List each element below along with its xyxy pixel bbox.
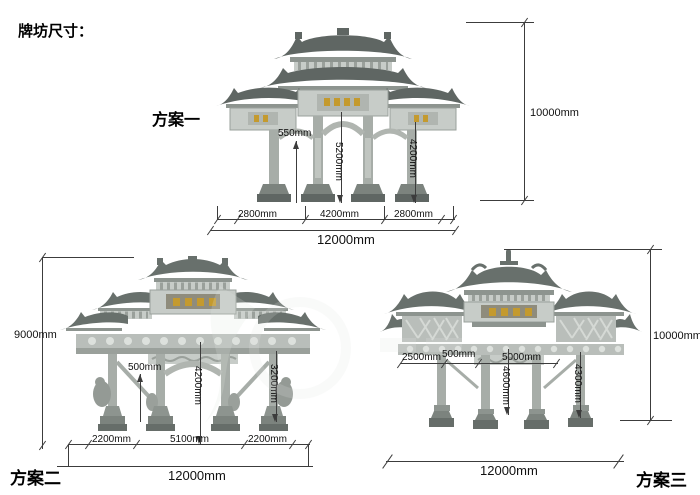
plan1-label: 方案一: [152, 106, 200, 130]
dim-extension-line: [308, 444, 309, 466]
dim-label-plan2-bay-center: 5100mm: [170, 434, 209, 445]
dim-extension-line: [620, 420, 672, 421]
dim-line: [524, 22, 525, 200]
dim-label-plan1-bay-right: 2800mm: [394, 209, 433, 220]
plan2-archway-illustration: [52, 256, 334, 440]
page-title: 牌坊尺寸：: [18, 20, 93, 41]
dim-line: [650, 249, 651, 420]
dim-label-plan1-total-width: 12000mm: [317, 233, 375, 247]
dim-label-plan1-bay-center: 4200mm: [320, 209, 359, 220]
dim-label-plan2-9000: 9000mm: [14, 329, 57, 341]
dim-line: [42, 257, 43, 449]
paifang-dimension-drawing: 牌坊尺寸： 方案一: [0, 0, 700, 495]
plan1-archway-illustration: [216, 26, 470, 212]
dim-arrow: [504, 407, 510, 415]
dim-label-plan1-5200: 5200mm: [333, 142, 343, 181]
dim-total-line: [386, 461, 624, 462]
dim-label-plan2-3200: 3200mm: [268, 364, 278, 403]
plan3-bases: [429, 405, 593, 429]
dim-extension-line: [68, 444, 69, 466]
dim-arrow: [337, 195, 343, 203]
dim-label-plan3-4600: 4600mm: [500, 366, 510, 405]
dim-label-plan3-500: 500mm: [442, 349, 475, 360]
dim-label-plan1-4200v: 4200mm: [407, 139, 417, 178]
dim-label-plan2-bay-left: 2200mm: [92, 434, 131, 445]
plan3-label: 方案三: [636, 466, 687, 491]
dim-line: [296, 141, 297, 203]
plan2-plaque: [150, 290, 236, 314]
dim-label-plan2-4200: 4200mm: [192, 366, 202, 405]
dim-label-plan2-500: 500mm: [128, 362, 161, 373]
dim-extension-line: [504, 249, 662, 250]
plan2-label: 方案二: [10, 464, 61, 489]
dim-arrow: [272, 414, 278, 422]
dim-label-plan3-total-width: 12000mm: [480, 464, 538, 478]
dim-extension-line: [42, 257, 134, 258]
dim-label-plan2-bay-right: 2200mm: [248, 434, 287, 445]
dim-arrow: [411, 195, 417, 203]
dim-total-line: [57, 466, 313, 467]
plan1-bases: [257, 184, 429, 202]
dim-label-plan2-total-width: 12000mm: [168, 469, 226, 483]
plan2-bases: [98, 406, 288, 431]
dim-label-plan3-4300: 4300mm: [572, 364, 582, 403]
dim-line: [140, 374, 141, 422]
dim-label-plan1-10000: 10000mm: [530, 107, 579, 119]
plan3-archway-illustration: [380, 248, 642, 440]
dim-label-plan1-550: 550mm: [278, 128, 311, 139]
dim-label-plan3-2500: 2500mm: [402, 352, 441, 363]
dim-arrow: [576, 410, 582, 418]
dim-label-plan1-bay-left: 2800mm: [238, 209, 277, 220]
dim-extension-line: [480, 200, 534, 201]
dim-label-plan3-10000: 10000mm: [653, 330, 700, 342]
dim-total-line: [210, 230, 455, 231]
plan3-plaque: [464, 302, 554, 327]
